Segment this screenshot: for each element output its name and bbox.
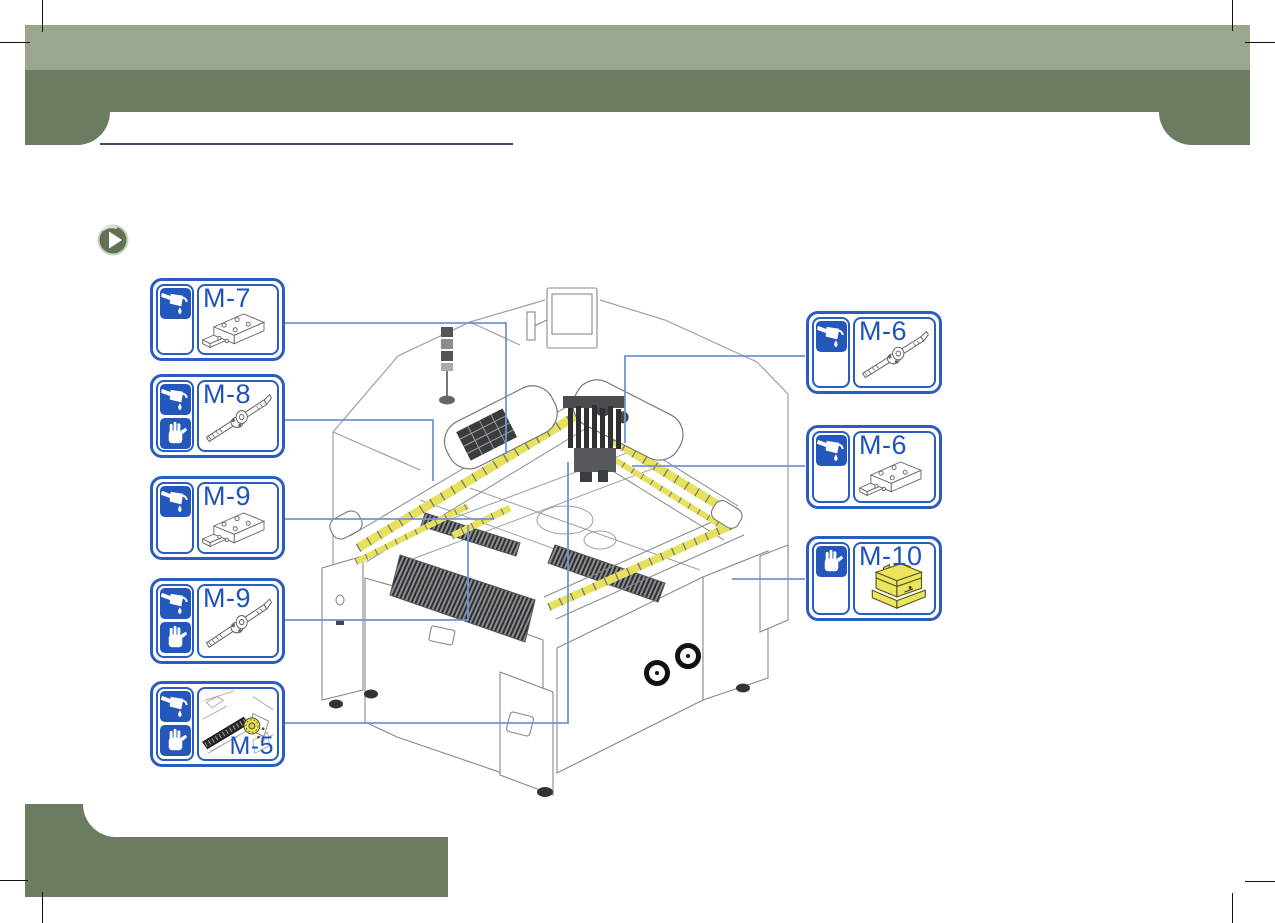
callout-m6-guide: M-6 <box>806 425 942 509</box>
callout-label: M-9 <box>203 584 251 613</box>
machine-illustration <box>0 0 1275 923</box>
callout-m7: M-7 <box>150 278 285 361</box>
callout-label: M-9 <box>203 482 251 511</box>
lubrication-icon-column <box>156 687 194 761</box>
lubrication-icon-column <box>156 584 194 658</box>
callout-m9-guide: M-9 <box>150 476 285 560</box>
oil-can-icon <box>160 384 191 415</box>
callout-label: M-10 <box>859 542 923 571</box>
callout-m10: M-10 <box>806 536 942 621</box>
lubrication-icon-column <box>812 317 850 388</box>
callout-label: M-7 <box>203 284 251 313</box>
callout-m6-screw: M-6 <box>806 311 942 394</box>
monitor <box>527 288 597 348</box>
callout-m8: M-8 <box>150 374 285 458</box>
oil-can-icon <box>816 321 847 352</box>
grease-hand-icon <box>160 622 191 653</box>
lubrication-icon-column <box>812 542 850 615</box>
oil-can-icon <box>816 435 847 466</box>
grease-hand-icon <box>160 418 191 449</box>
callout-label: M-5 <box>229 731 274 761</box>
lubrication-icon-column <box>156 482 194 554</box>
oil-can-icon <box>160 691 191 722</box>
oil-can-icon <box>160 588 191 619</box>
grease-hand-icon <box>816 546 847 577</box>
lubrication-icon-column <box>156 380 194 452</box>
lubrication-icon-column <box>812 431 850 503</box>
manual-page: { "page": { "kind": "maintenance-lubrica… <box>0 0 1275 923</box>
oil-can-icon <box>160 486 191 517</box>
callout-label: M-8 <box>203 380 251 409</box>
callout-m5: M-5 <box>150 681 285 767</box>
grease-hand-icon <box>160 725 191 756</box>
lubrication-icon-column <box>156 284 194 355</box>
signal-tower <box>439 327 455 405</box>
callout-m9-screw: M-9 <box>150 578 285 664</box>
oil-can-icon <box>160 288 191 319</box>
callout-label: M-6 <box>859 317 907 346</box>
callout-label: M-6 <box>859 431 907 460</box>
